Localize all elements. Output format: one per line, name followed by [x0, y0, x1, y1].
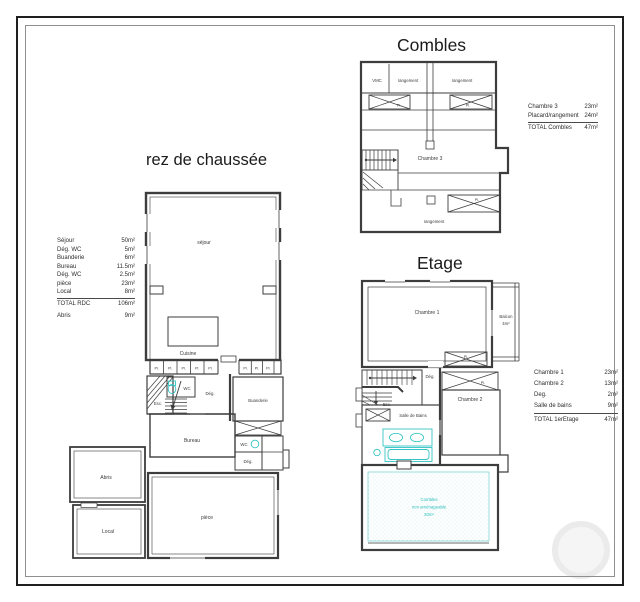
label-abris: Abris: [100, 475, 112, 481]
legend-label: Chambre 2: [534, 379, 564, 390]
rdc-legend: Séjour50m² Dég. WC5m² Buanderie6m² Burea…: [57, 237, 135, 321]
label-vmc: VMC: [372, 78, 382, 83]
label-rangement: rangement: [398, 78, 419, 83]
label-chambre3: Chambre 3: [418, 156, 443, 162]
sink-icon: [251, 440, 259, 448]
label-deg2: Dég.: [243, 459, 252, 464]
legend-row: Dég. WC5m²: [57, 246, 135, 255]
legend-row: Placard/rangement24m²: [528, 112, 598, 121]
stairs: [362, 150, 398, 190]
legend-value: 2m²: [608, 390, 618, 401]
label-placard: Pl.: [195, 367, 199, 371]
label-placard: Pl.: [243, 367, 247, 371]
legend-label: Chambre 3: [528, 103, 558, 112]
legend-label: Placard/rangement: [528, 112, 579, 121]
legend-total-row: TOTAL Combles47m²: [528, 122, 598, 133]
label-rangement: rangement: [424, 219, 445, 224]
legend-label: TOTAL RDC: [57, 300, 90, 309]
label-placard: Pl.: [466, 104, 470, 108]
legend-label: Salle de bains: [534, 401, 572, 412]
legend-value: 11.5m²: [117, 263, 135, 272]
legend-row: Séjour50m²: [57, 237, 135, 246]
legend-value: 13m²: [604, 379, 618, 390]
label-placard: Pl.: [266, 367, 270, 371]
legend-row: Local8m²: [57, 288, 135, 297]
legend-row: Dég. WC2.5m²: [57, 271, 135, 280]
stairs: [362, 370, 422, 405]
label-placard: Pl.: [208, 367, 212, 371]
closet-cross: [235, 421, 281, 435]
label-placard: Pl.: [168, 367, 172, 371]
legend-row: Salle de bains9m²: [534, 401, 618, 412]
label-esc: Esc.: [154, 401, 162, 406]
combles-room-labels: VMC rangement rangement Pl. Pl. Chambre …: [372, 78, 479, 224]
floorplan-sheet: rez de chaussée Combles Etage Séjour50m²…: [0, 0, 640, 602]
etage-floorplan: Chambre 1 Balcon 4m² Pl. Dég. Pl. Chambr…: [350, 255, 530, 560]
legend-value: 47m²: [604, 415, 618, 426]
closet-cross: [369, 95, 492, 109]
label-esc: Esc.: [383, 402, 391, 407]
legend-label: Abris: [57, 312, 71, 321]
legend-label: Séjour: [57, 237, 74, 246]
label-placard: Pl.: [255, 367, 259, 371]
combles-title: Combles: [397, 35, 466, 56]
legend-label: Dég. WC: [57, 246, 81, 255]
label-wc: WC: [183, 386, 190, 391]
legend-value: 8m²: [125, 288, 135, 297]
label-placard: Pl.: [397, 104, 401, 108]
legend-value: 2.5m²: [120, 271, 135, 280]
legend-label: Local: [57, 288, 71, 297]
label-attic-2: non aménageable: [412, 505, 447, 510]
label-placard: Pl.: [481, 381, 485, 385]
label-attic-3: 20m²: [424, 512, 434, 517]
legend-label: pièce: [57, 280, 71, 289]
legend-row: Chambre 123m²: [534, 368, 618, 379]
label-piece: pièce: [201, 515, 213, 521]
etage-legend: Chambre 123m² Chambre 213m² Deg.2m² Sall…: [534, 368, 618, 426]
legend-value: 5m²: [125, 246, 135, 255]
toilet-icon: [168, 381, 176, 394]
label-sdb: Salle de Bains: [399, 413, 426, 418]
rdc-title: rez de chaussée: [146, 151, 267, 170]
legend-label: Bureau: [57, 263, 76, 272]
sink-counter-icon: [383, 429, 432, 446]
legend-value: 23m²: [584, 103, 598, 112]
legend-value: 6m²: [125, 254, 135, 263]
legend-value: 23m²: [121, 280, 135, 289]
label-balcon: Balcon: [499, 314, 513, 319]
legend-value: 9m²: [608, 401, 618, 412]
closet-cross: [442, 372, 498, 390]
legend-row: Abris9m²: [57, 312, 135, 321]
bathroom-fixtures: [374, 429, 432, 462]
label-sejour: séjour: [197, 240, 211, 246]
label-bureau: Bureau: [184, 438, 200, 444]
label-chambre1: Chambre 1: [415, 310, 440, 316]
legend-value: 24m²: [584, 112, 598, 121]
sink-icon: [390, 433, 403, 441]
label-placard: Pl.: [475, 198, 479, 202]
label-buanderie: Buanderie: [248, 398, 268, 403]
legend-row: Chambre 323m²: [528, 103, 598, 112]
label-placard: Pl.: [154, 367, 158, 371]
legend-label: TOTAL 1erEtage: [534, 415, 579, 426]
toilet-icon: [374, 449, 380, 455]
legend-row: Chambre 213m²: [534, 379, 618, 390]
etage-title: Etage: [417, 253, 463, 274]
label-local: Local: [102, 529, 114, 535]
label-deg: Dég.: [205, 391, 214, 396]
legend-value: 23m²: [604, 368, 618, 379]
combles-walls: [361, 62, 508, 232]
label-rangement: rangement: [452, 78, 473, 83]
label-attic-1: Combles: [421, 497, 438, 502]
door-symbol: [221, 356, 236, 362]
label-balcon-area: 4m²: [502, 321, 510, 326]
legend-label: Deg.: [534, 390, 547, 401]
label-chambre2: Chambre 2: [458, 397, 483, 403]
label-placard: Pl.: [181, 367, 185, 371]
legend-value: 50m²: [121, 237, 135, 246]
legend-total-row: TOTAL RDC106m²: [57, 298, 135, 309]
legend-label: Buanderie: [57, 254, 84, 263]
combles-legend: Chambre 323m² Placard/rangement24m² TOTA…: [528, 103, 598, 133]
legend-row: pièce23m²: [57, 280, 135, 289]
label-cuisine: Cuisine: [180, 351, 197, 357]
legend-value: 47m²: [584, 124, 598, 133]
legend-row: Buanderie6m²: [57, 254, 135, 263]
closet-cross: [366, 409, 390, 421]
legend-label: TOTAL Combles: [528, 124, 572, 133]
sink-icon: [411, 433, 424, 441]
legend-total-row: TOTAL 1erEtage47m²: [534, 413, 618, 426]
label-deg: Dég.: [425, 374, 434, 379]
legend-value: 9m²: [125, 312, 135, 321]
watermark-circle: [552, 521, 610, 579]
combles-floorplan: VMC rangement rangement Pl. Pl. Chambre …: [355, 58, 515, 238]
kitchen-island: [168, 317, 218, 346]
legend-row: Bureau11.5m²: [57, 263, 135, 272]
legend-label: Dég. WC: [57, 271, 81, 280]
legend-label: Chambre 1: [534, 368, 564, 379]
legend-value: 106m²: [118, 300, 135, 309]
label-wc2: WC: [240, 442, 247, 447]
legend-row: Deg.2m²: [534, 390, 618, 401]
label-placard: Pl.: [464, 355, 468, 359]
